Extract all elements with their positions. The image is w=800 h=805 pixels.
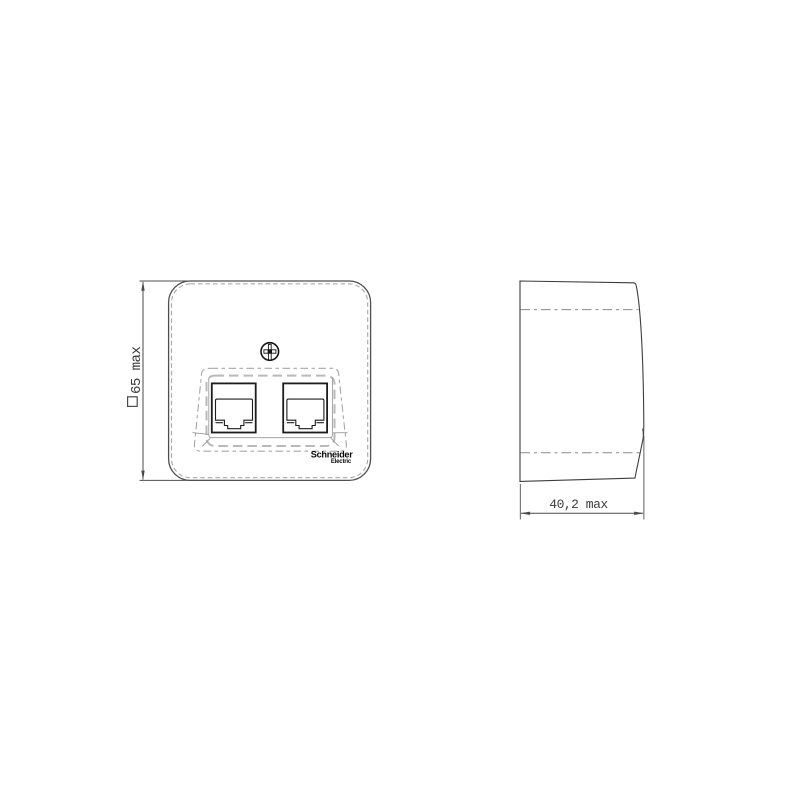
svg-text:Electric: Electric: [331, 459, 352, 465]
svg-text:40,2 max: 40,2 max: [549, 497, 608, 512]
svg-text:65 max: 65 max: [129, 347, 145, 394]
